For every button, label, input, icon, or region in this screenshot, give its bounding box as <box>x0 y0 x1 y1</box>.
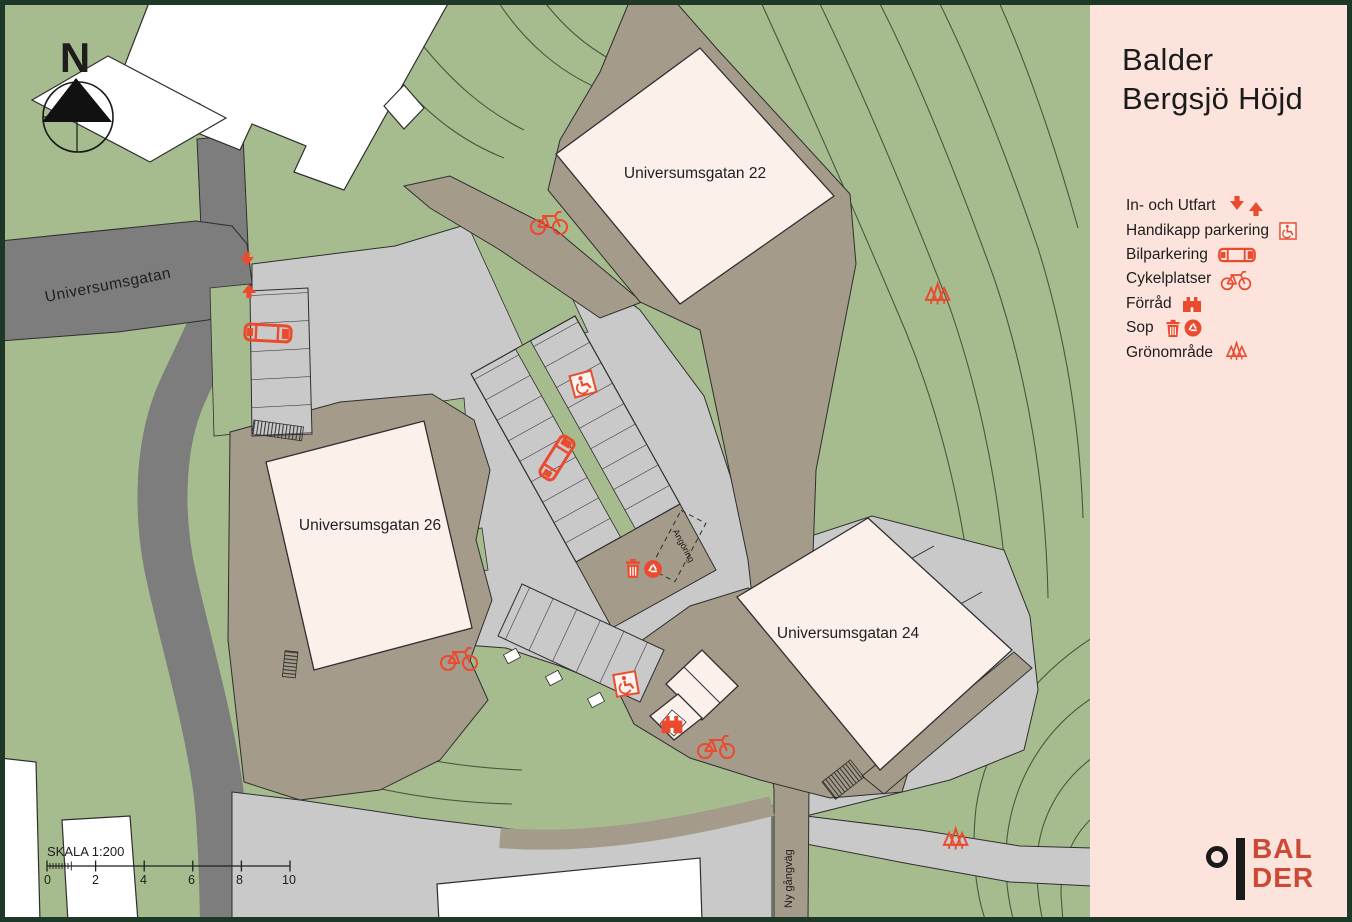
legend-item-storage: Förråd <box>1126 292 1298 316</box>
legend-label: Sop <box>1126 319 1154 337</box>
building-22-label: Universumsgatan 22 <box>624 165 766 182</box>
trash-and-recycle-icon <box>1163 317 1205 339</box>
legend-item-bicycle: Cykelplatser <box>1126 267 1298 291</box>
building-24-label: Universumsgatan 24 <box>777 625 920 642</box>
scale-tick: 2 <box>92 873 99 887</box>
logo-line-1: BAL <box>1252 834 1314 863</box>
logo-ring-icon <box>1204 844 1230 870</box>
footpath-label: Ny gångväg <box>783 849 795 908</box>
scale-tick: 4 <box>140 873 147 887</box>
scale-label: SKALA 1:200 <box>47 844 124 859</box>
legend-item-car-parking: Bilparkering <box>1126 243 1298 267</box>
legend-label: Handikapp parkering <box>1126 222 1269 240</box>
scale-tick: 0 <box>44 873 51 887</box>
trash-icon <box>626 559 640 578</box>
scale-tick: 8 <box>236 873 243 887</box>
balder-logo: BAL DER <box>1186 828 1346 914</box>
stairs <box>282 651 298 678</box>
car-icon <box>1217 247 1257 263</box>
existing-building-south <box>62 816 138 922</box>
legend-label: Förråd <box>1126 295 1172 313</box>
legend-item-green-area: Grönområde <box>1126 340 1298 364</box>
legend-item-entry-exit: In- och Utfart <box>1126 194 1298 218</box>
legend-label: In- och Utfart <box>1126 197 1216 215</box>
scale-tick: 6 <box>188 873 195 887</box>
legend-panel: Balder Bergsjö Höjd In- och Utfart Handi… <box>1090 0 1352 922</box>
site-plan-page: Angöring N Universumsgatan Universumsgat… <box>0 0 1352 922</box>
legend-item-handicap-parking: Handikapp parkering <box>1126 218 1298 242</box>
parking-row-west <box>250 288 312 436</box>
building-26-label: Universumsgatan 26 <box>299 517 441 534</box>
green-strip-roadside <box>210 284 253 436</box>
title-line-2: Bergsjö Höjd <box>1122 79 1303 118</box>
legend-label: Cykelplatser <box>1126 270 1211 288</box>
scale-tick: 10 <box>282 873 296 887</box>
bicycle-icon <box>1220 267 1252 291</box>
logo-line-2: DER <box>1252 863 1314 892</box>
handicap-parking-icon <box>1278 221 1298 241</box>
site-plan-map: Angöring N Universumsgatan Universumsgat… <box>0 0 1092 922</box>
legend-label: Bilparkering <box>1126 246 1208 264</box>
logo-bar <box>1236 838 1245 900</box>
storage-icon <box>1181 294 1203 314</box>
legend-label: Grönområde <box>1126 344 1213 362</box>
legend-list: In- och Utfart Handikapp parkering Bilpa… <box>1126 194 1298 365</box>
north-label: N <box>60 34 90 81</box>
trees-icon <box>1222 341 1250 365</box>
logo-text: BAL DER <box>1252 834 1314 892</box>
page-title: Balder Bergsjö Höjd <box>1122 40 1303 118</box>
title-line-1: Balder <box>1122 40 1303 79</box>
handicap-parking-icon <box>613 671 638 696</box>
legend-item-waste: Sop <box>1126 316 1298 340</box>
existing-building-southwest <box>0 758 40 922</box>
handicap-parking-icon <box>570 371 597 398</box>
entry-exit-arrows-icon <box>1225 195 1267 217</box>
recycle-icon <box>644 560 662 578</box>
